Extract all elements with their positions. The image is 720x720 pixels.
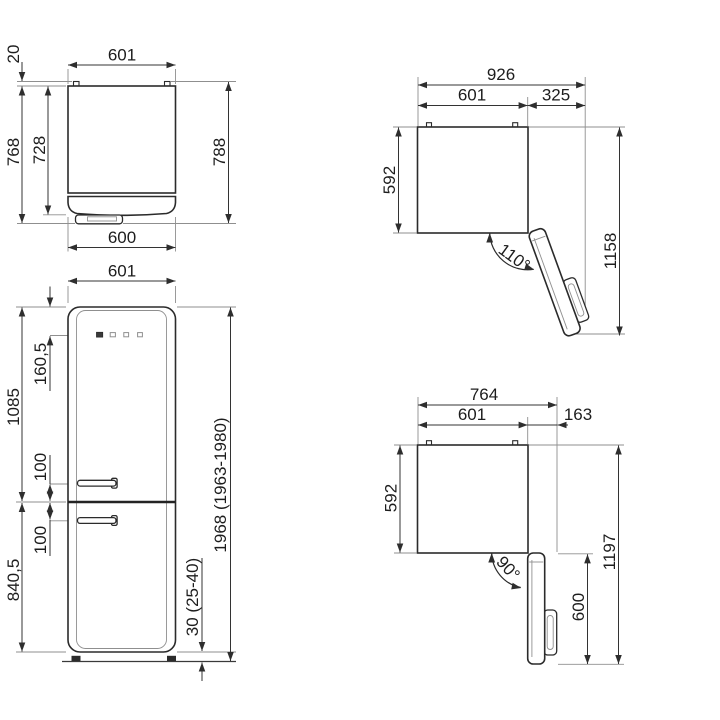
dim-depth-body: 728 (30, 87, 49, 215)
cabinet-body-top (418, 445, 529, 553)
dim-label: 30 (25-40) (183, 558, 202, 636)
dim-label: 600 (108, 228, 136, 247)
view-top-closed: 601 20 768 728 788 600 (4, 45, 236, 252)
dim-label: 20 (4, 45, 23, 64)
door-open-90 (528, 553, 557, 664)
dim-depth-with-handle: 768 (4, 87, 23, 224)
dim-label: 1158 (601, 233, 620, 270)
door-front-top (68, 197, 176, 216)
dim-body-width: 601 (418, 405, 528, 425)
dim-handle-below: 100 (31, 503, 50, 556)
dimension-drawing: 601 20 768 728 788 600 (0, 0, 720, 720)
cabinet-body-top (418, 127, 529, 233)
dim-label: 1197 (600, 534, 619, 571)
dim-label: 592 (382, 484, 401, 512)
view-front: 601 160,5 1085 100 100 840,5 1968 (1963-… (4, 262, 236, 682)
dim-label: 163 (564, 405, 592, 424)
dim-label: 926 (487, 65, 515, 84)
dim-overall-depth: 1197 (600, 446, 619, 665)
dim-label: 100 (31, 526, 50, 554)
dim-label: 100 (31, 453, 50, 481)
door-open-110 (528, 223, 593, 337)
dim-door-extension: 163 (528, 405, 592, 425)
dim-label: 325 (542, 86, 570, 105)
dim-overall-depth: 1158 (601, 128, 620, 336)
control-knob-icon (97, 332, 103, 337)
dim-depth-overall: 788 (210, 82, 229, 223)
lower-door-handle (78, 516, 118, 526)
foot-right (167, 656, 176, 662)
control-icon (124, 333, 129, 337)
view-open-90: 90° 764 601 163 592 1197 600 (382, 385, 625, 664)
dim-label: 601 (458, 86, 486, 105)
dim-total-height: 1968 (1963-1980) (211, 308, 231, 662)
foot-left (72, 656, 81, 662)
dim-upper-section: 1085 (4, 308, 23, 502)
dim-label: 764 (470, 385, 498, 404)
dimension-drawing-page: 601 20 768 728 788 600 (0, 0, 720, 720)
dim-label: 768 (4, 138, 23, 166)
dim-overall-width: 926 (418, 65, 585, 85)
dim-controls-offset: 160,5 (31, 287, 50, 392)
dim-door-depth: 600 (569, 554, 588, 664)
dim-label: 728 (30, 136, 49, 164)
dim-label: 601 (458, 405, 486, 424)
dim-back-gap: 20 (4, 45, 23, 81)
dim-door-extension: 325 (528, 86, 586, 106)
cabinet-body-top (68, 86, 176, 193)
handle-top-view (76, 215, 123, 224)
dim-overall-width: 764 (418, 385, 557, 405)
dim-handle-above: 100 (31, 453, 50, 501)
view-open-110: 110° 926 601 325 592 1158 (380, 65, 625, 337)
dim-lower-section: 840,5 (4, 503, 23, 652)
control-icon (110, 333, 115, 337)
dim-depth: 592 (380, 128, 399, 233)
dim-plinth: 30 (25-40) (183, 558, 202, 681)
dim-label: 601 (108, 262, 136, 281)
dim-label: 840,5 (4, 559, 23, 602)
dim-door-width: 600 (68, 228, 176, 248)
dim-depth: 592 (382, 446, 401, 553)
dim-label: 788 (210, 138, 229, 166)
dim-top-width: 601 (68, 46, 176, 66)
dim-front-width: 601 (68, 262, 176, 282)
dim-body-width: 601 (418, 86, 528, 106)
upper-door-handle (78, 478, 118, 488)
cabinet-body-front (68, 307, 176, 652)
dim-label: 1968 (1963-1980) (211, 417, 230, 552)
angle-label: 90° (492, 552, 523, 584)
dim-label: 600 (569, 593, 588, 621)
dim-label: 592 (380, 166, 399, 194)
dim-label: 160,5 (31, 343, 50, 386)
control-icon (138, 333, 143, 337)
dim-label: 601 (108, 46, 136, 65)
dim-label: 1085 (4, 388, 23, 426)
